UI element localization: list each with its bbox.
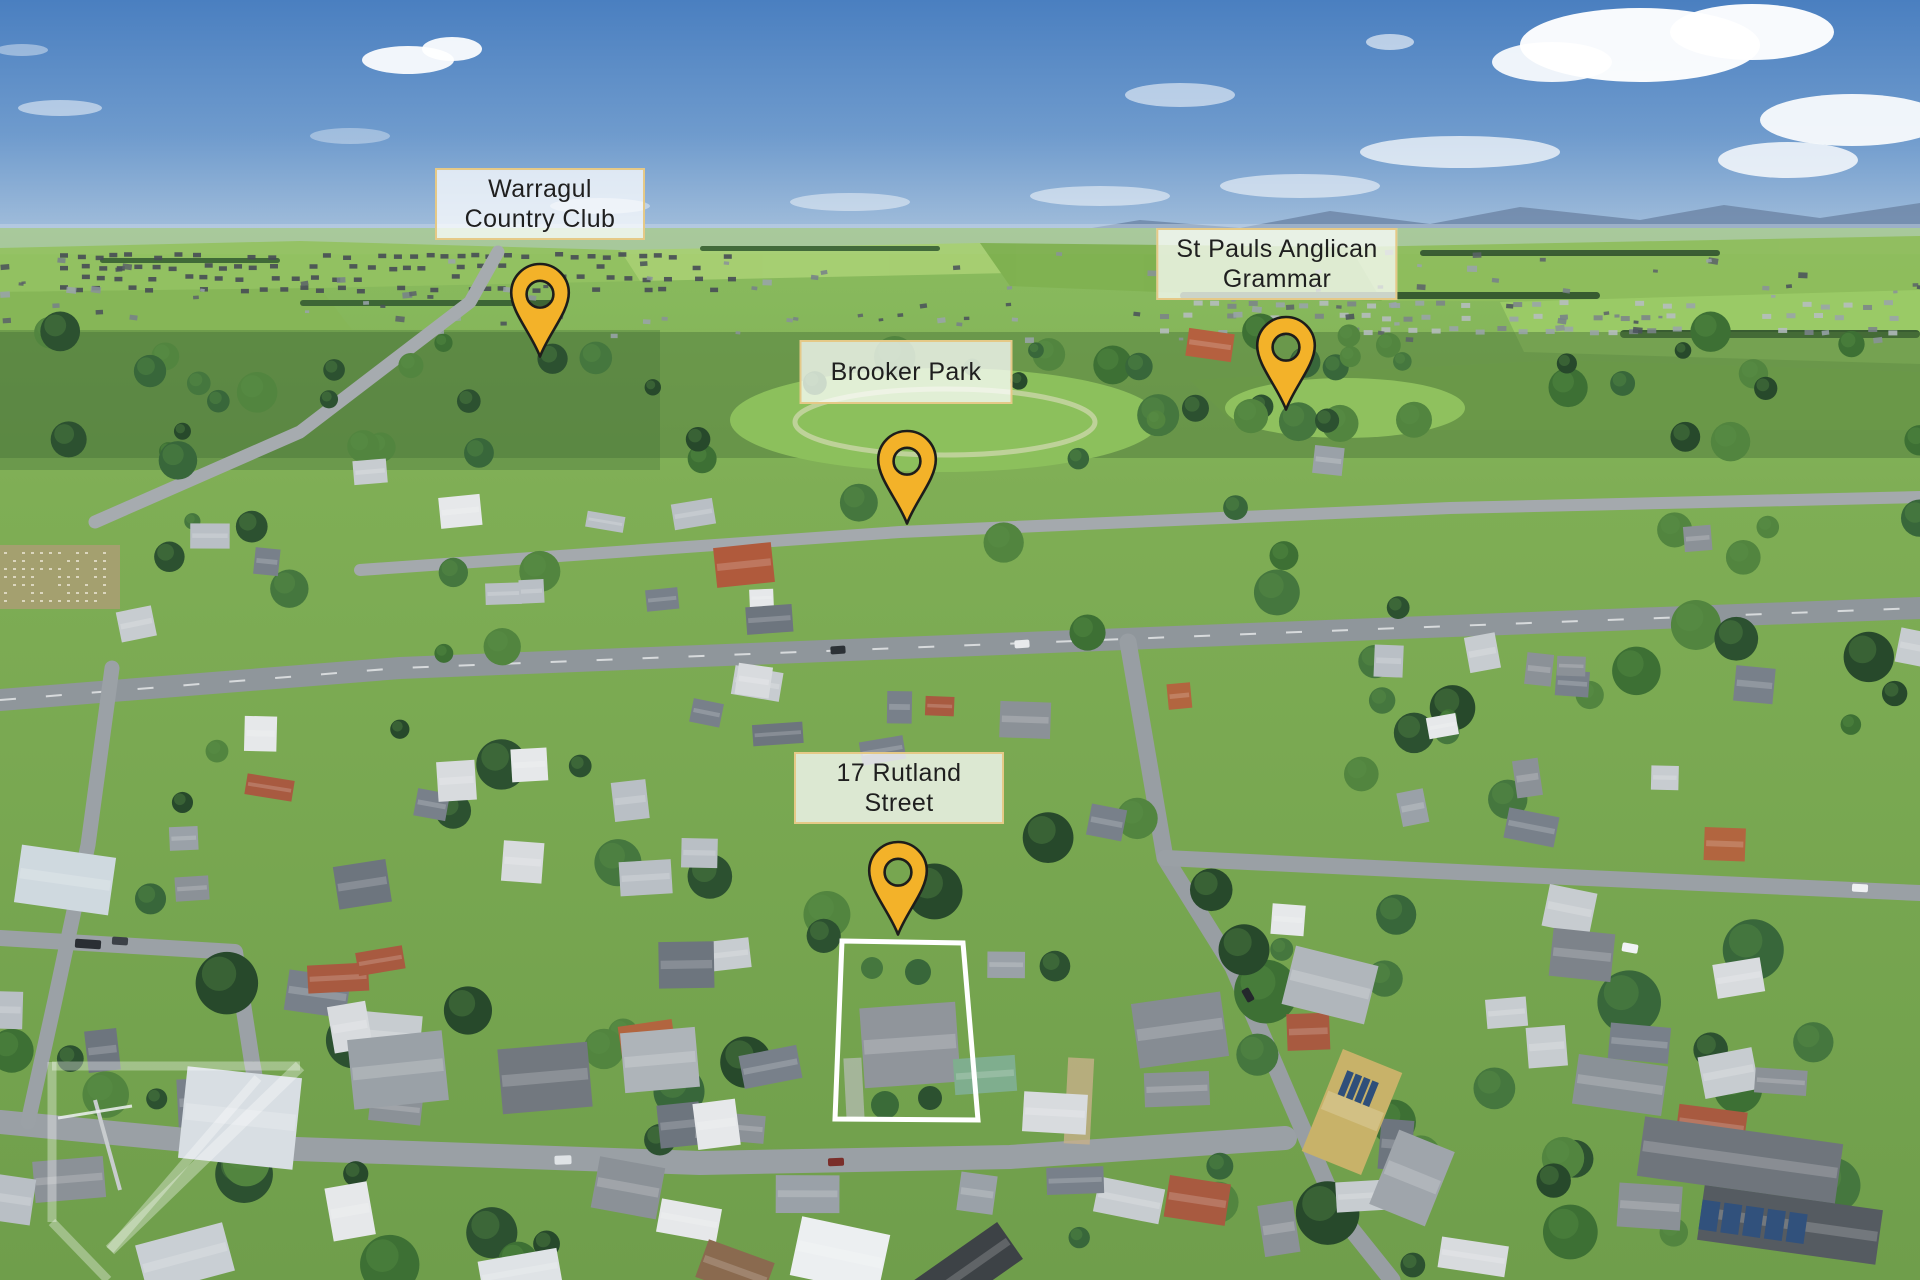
map-pin-icon — [1254, 313, 1318, 413]
location-label-line1: 17 Rutland — [814, 758, 984, 788]
location-label-line2: Street — [814, 788, 984, 818]
location-label-line1: Brooker Park — [824, 357, 989, 387]
map-pin-icon — [866, 838, 930, 938]
location-label: 17 Rutland Street — [794, 752, 1004, 824]
location-label: St Pauls Anglican Grammar — [1156, 228, 1397, 300]
location-label-line1: Warragul — [455, 174, 625, 204]
location-label-line2: Country Club — [455, 204, 625, 234]
location-label: Warragul Country Club — [435, 168, 645, 240]
map-pin-icon — [875, 427, 939, 527]
location-label: Brooker Park — [800, 340, 1013, 404]
map-pin-icon — [508, 260, 572, 360]
location-label-line1: St Pauls Anglican — [1176, 234, 1377, 264]
aerial-photograph — [0, 0, 1920, 1280]
aerial-property-photo: Warragul Country Club Brooker Park St Pa… — [0, 0, 1920, 1280]
location-label-line2: Grammar — [1176, 264, 1377, 294]
